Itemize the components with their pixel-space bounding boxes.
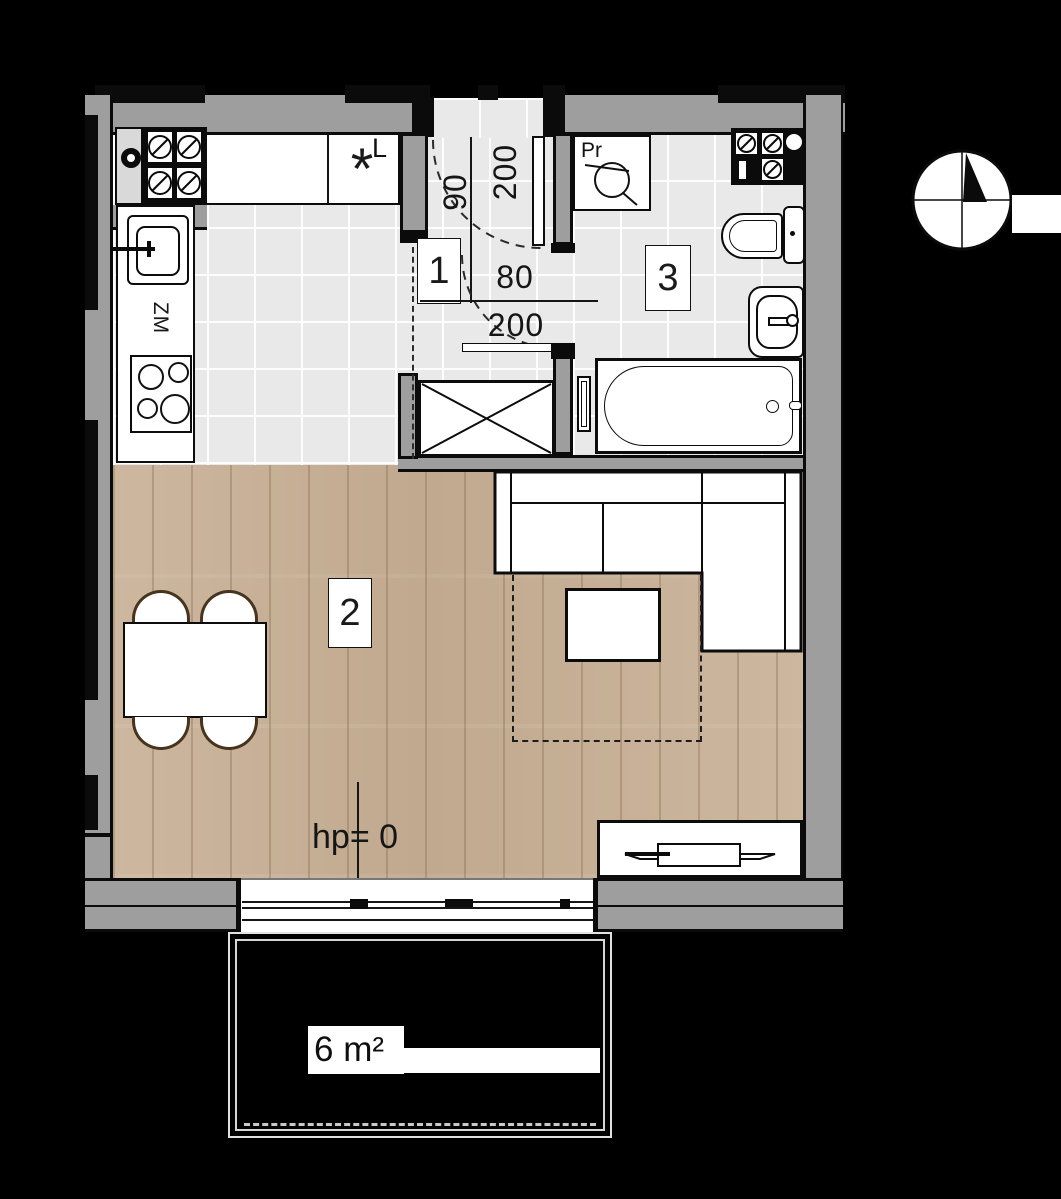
bottom-wall-right-outer (595, 905, 843, 932)
bottom-wall-right-inner (595, 878, 843, 905)
toilet-button (790, 231, 795, 236)
bath-door-leaf (462, 343, 554, 352)
tv-icon (610, 840, 790, 870)
bath-door-dim-line (420, 300, 598, 302)
bathtub-drain (766, 400, 779, 413)
hall-bath-wall-upper (553, 133, 573, 245)
stove-burner-3 (137, 398, 158, 419)
bath-shaft-vent-icons (731, 128, 806, 185)
window-mullion-3 (560, 899, 570, 909)
bathtub-side-trim-inner (581, 381, 587, 427)
room-number-bath: 3 (645, 245, 691, 311)
entry-lintel-stub (478, 85, 498, 100)
bathtub-faucet (789, 401, 802, 410)
hall-bath-wall-lower (553, 355, 573, 455)
kitchen-sink-basin (136, 226, 180, 276)
right-wall (803, 95, 843, 878)
wardrobe-cross (418, 380, 555, 457)
window-frame-line-2 (242, 907, 593, 909)
kitchen-shaft-ring-icon (121, 148, 141, 168)
window-frame-line-3 (242, 919, 593, 921)
window-jamb-right (593, 878, 598, 932)
left-wall-joint-line (85, 833, 113, 837)
bath-sink-faucet-knob (786, 314, 799, 327)
stove-burner-1 (138, 364, 164, 390)
dining-table (123, 622, 267, 718)
toilet-bowl-inner (729, 220, 777, 252)
bottom-wall-left-inner (85, 878, 240, 905)
window-sill-line (240, 878, 595, 880)
balcony-railing-ticks (244, 1123, 596, 1126)
bathtub-inner (604, 366, 793, 446)
window-mullion-2 (445, 899, 473, 907)
bottom-wall-left-outer (85, 905, 245, 932)
window-jamb-left (236, 878, 241, 932)
balcony-railing-inner (235, 939, 605, 1131)
kitchen-shaft-vent-icons (143, 127, 207, 205)
left-edge-black-2 (85, 420, 98, 700)
bath-door-width-dim: 80 (485, 258, 545, 296)
balcony-area-label: 6 m² (314, 1030, 384, 1070)
coffee-table (565, 588, 661, 662)
bath-door-height-dim: 200 (486, 306, 546, 344)
window-mullion-1 (350, 899, 368, 909)
entry-width-dim: 90 (437, 157, 473, 227)
wardrobe-left-wall (398, 373, 418, 459)
counter-divider-line (327, 135, 329, 203)
kitchen-faucet-cross (147, 241, 151, 257)
bath-door-hinge-block (551, 343, 575, 357)
left-edge-black-3 (85, 775, 98, 830)
floor-plan: * L ZM 90 200 1 80 200 Pr (0, 0, 1061, 1199)
entry-height-dim: 200 (487, 137, 523, 207)
fridge-label: L (372, 133, 387, 164)
north-compass-icon (905, 140, 1025, 260)
stove-burner-2 (168, 362, 189, 383)
dishwasher-label: ZM (148, 288, 172, 348)
balcony (228, 932, 612, 1138)
window-frame-line-1 (242, 901, 593, 903)
window-opening (240, 878, 595, 932)
floor-level-label: hp= 0 (312, 818, 398, 857)
washer-drum-icon (573, 135, 651, 211)
page-white-patch (1012, 195, 1061, 233)
left-edge-black-1 (85, 115, 98, 310)
room-number-living: 2 (328, 578, 372, 648)
stove-burner-4 (160, 394, 190, 424)
kitchen-hall-dashed-boundary (412, 247, 414, 459)
